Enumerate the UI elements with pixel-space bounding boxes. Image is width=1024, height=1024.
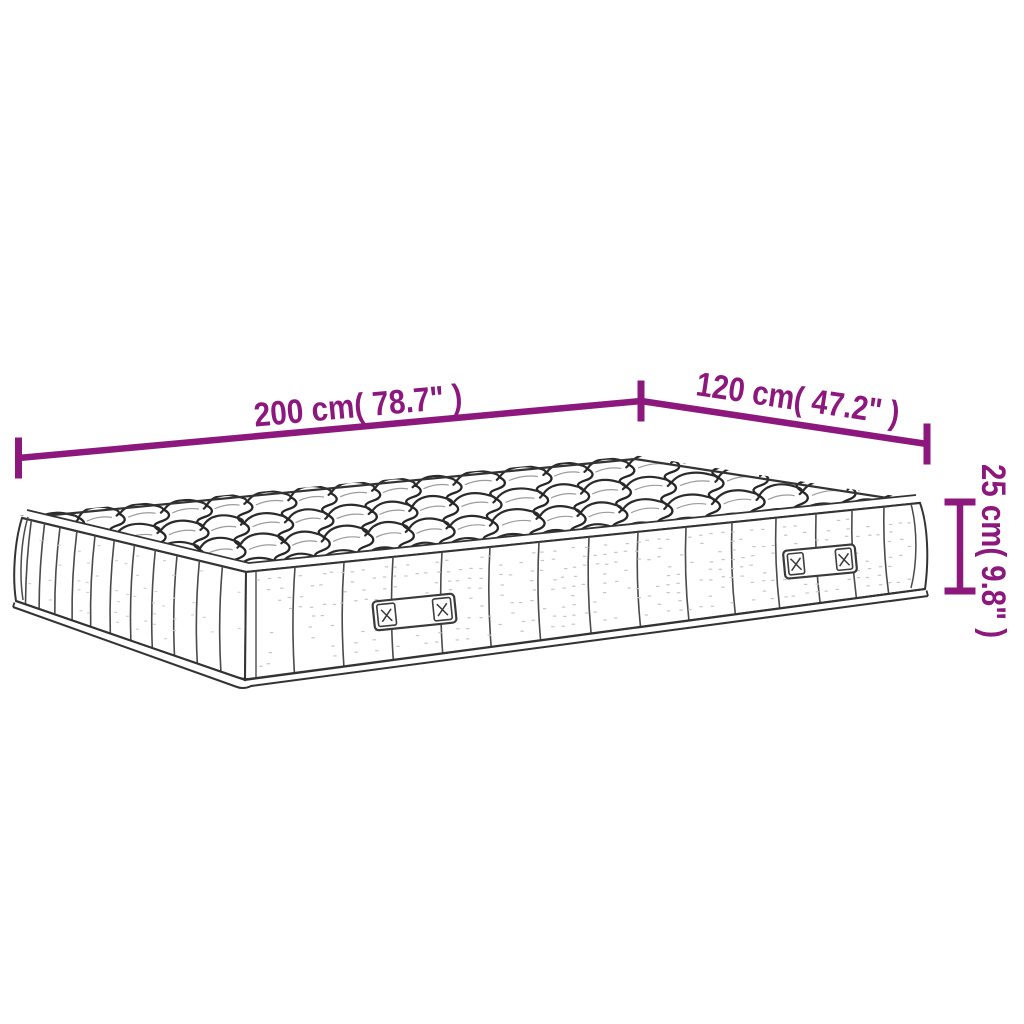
svg-text:25 cm( 9.8" ): 25 cm( 9.8" )	[974, 464, 1012, 638]
